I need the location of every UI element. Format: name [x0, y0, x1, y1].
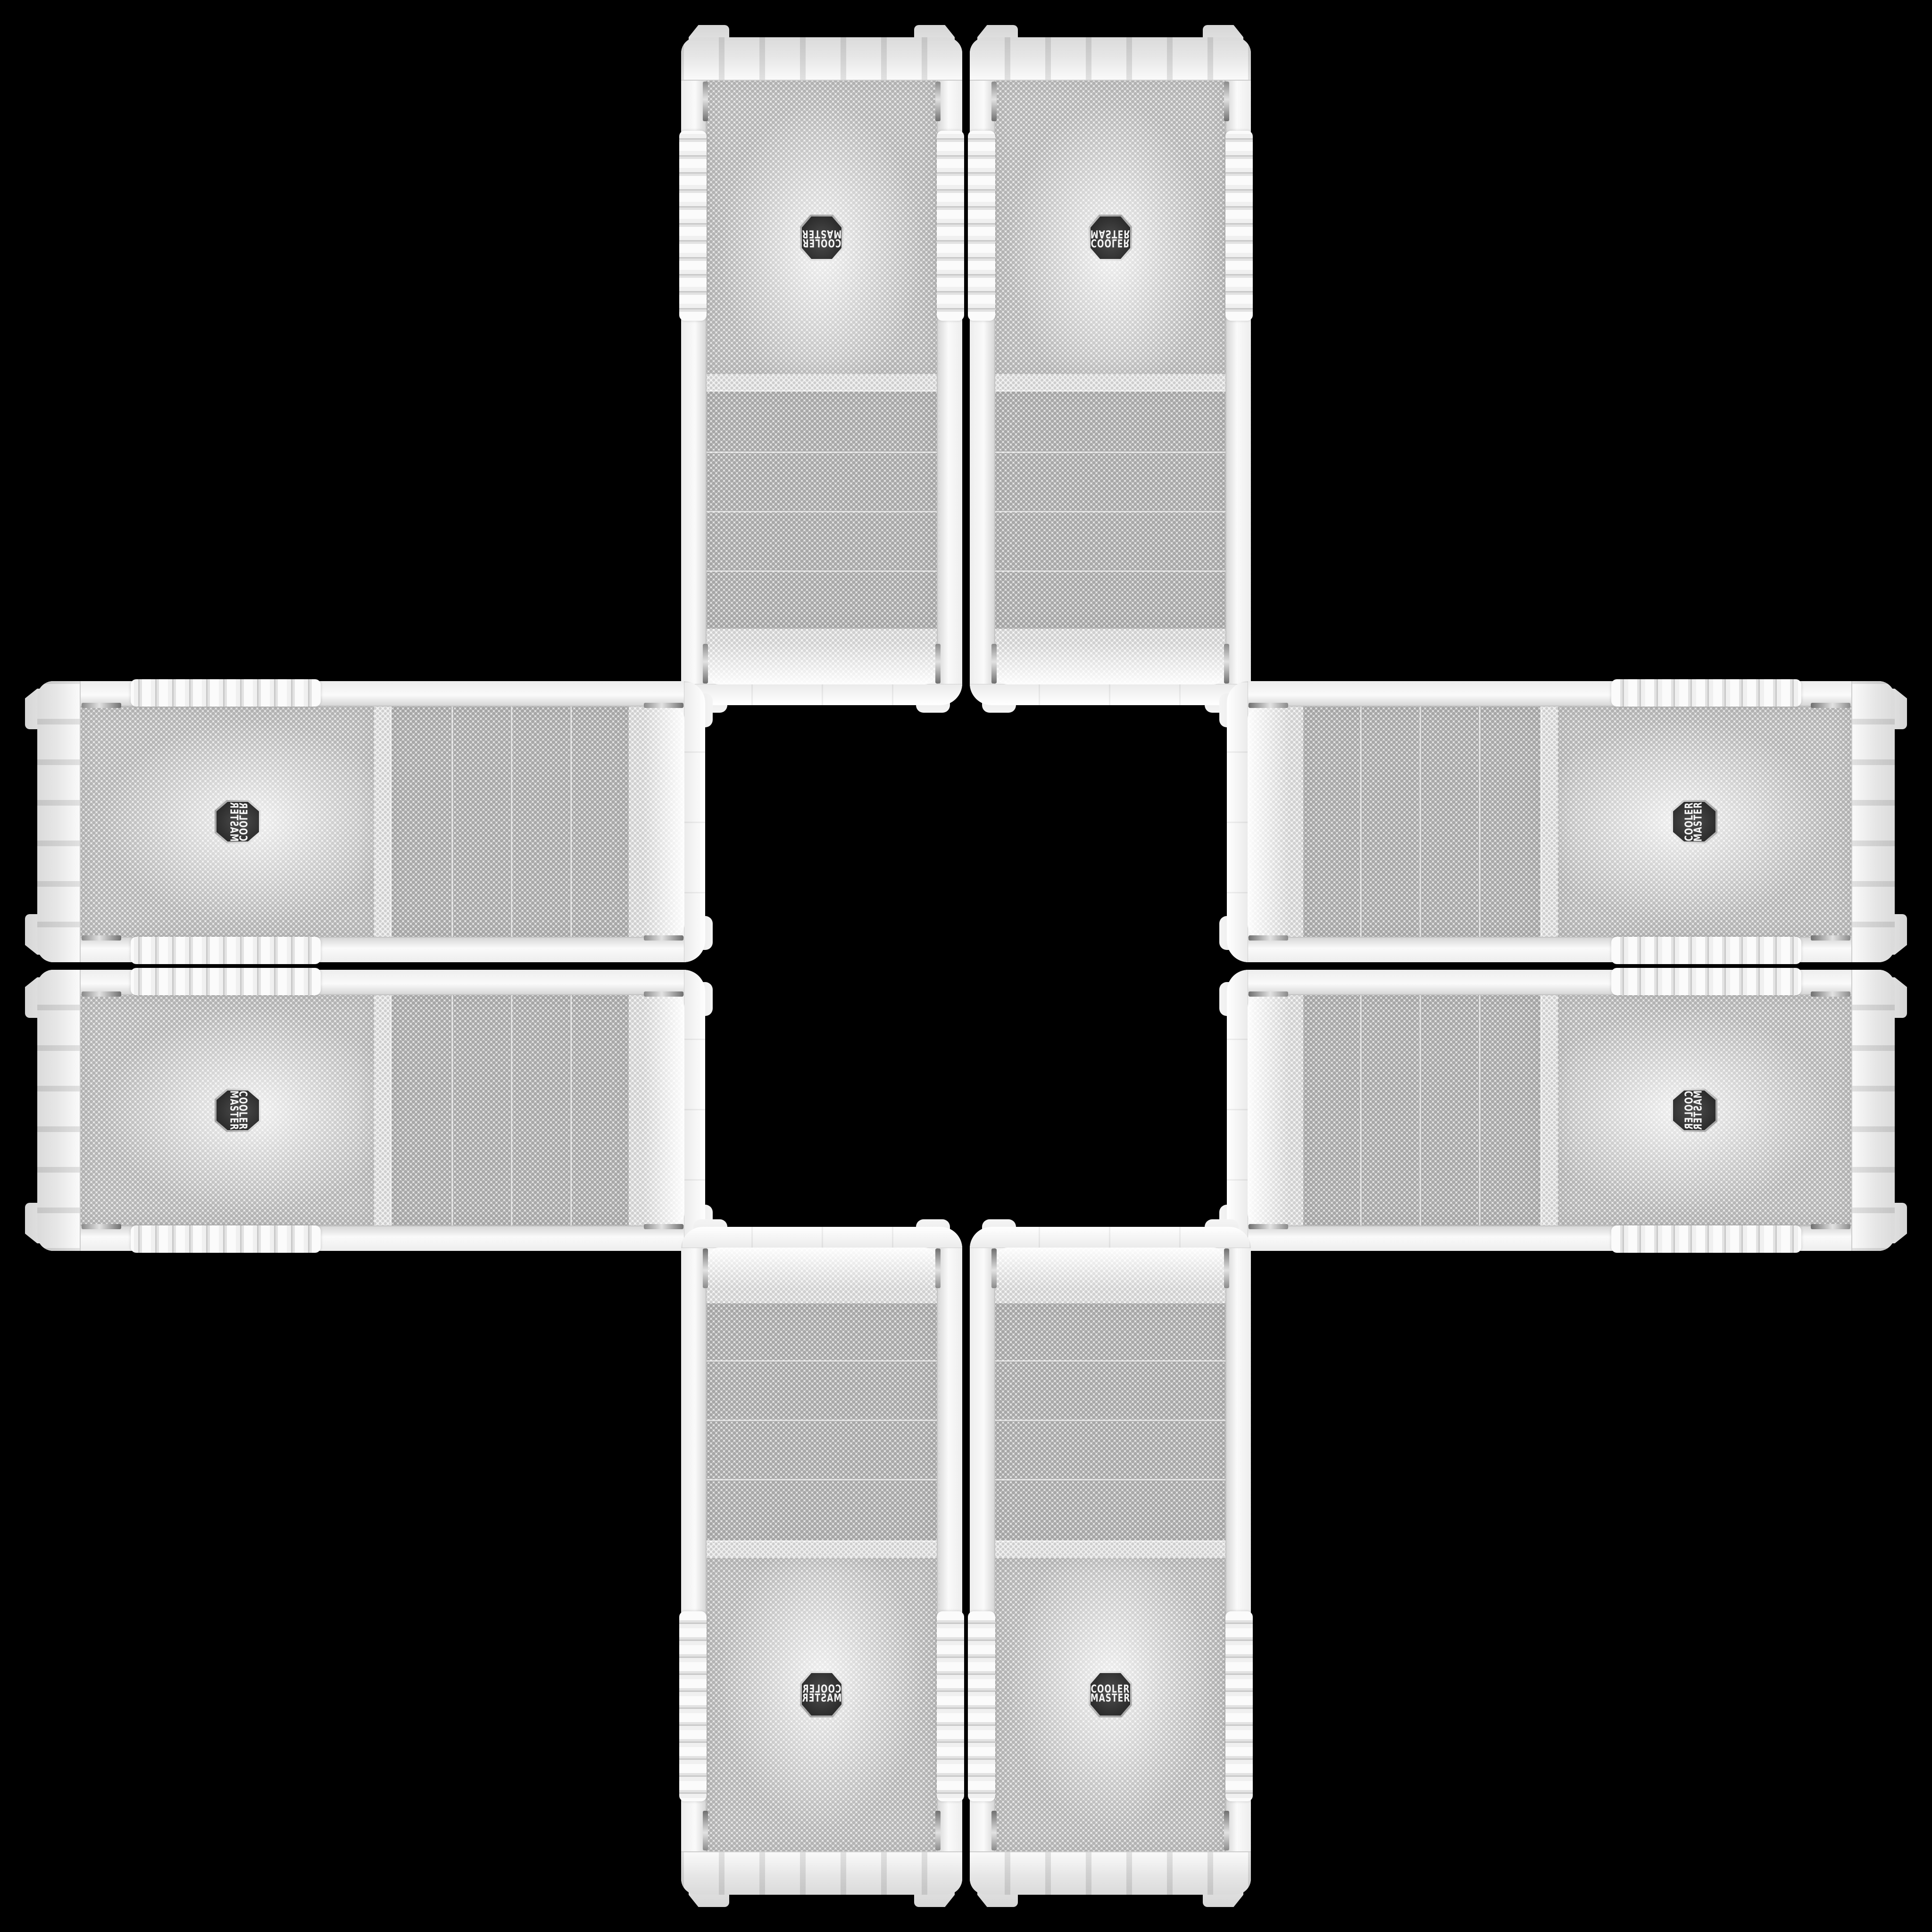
front-bezel: COOLER MASTER — [681, 37, 962, 705]
badge-text-line2: MASTER — [1091, 1693, 1131, 1705]
top-mesh-arch — [995, 1248, 1225, 1303]
chrome-trim — [1811, 935, 1850, 941]
case-front-right-top: COOLER MASTER — [1227, 681, 1895, 962]
chrome-trim — [644, 703, 683, 708]
bay-divider — [707, 569, 937, 572]
bottom-cap — [970, 1851, 1251, 1895]
badge-text-line2: MASTER — [1091, 227, 1131, 240]
chrome-trim — [644, 935, 683, 941]
front-bezel: COOLER MASTER — [681, 1227, 962, 1895]
badge-face: COOLER MASTER — [1673, 1091, 1715, 1130]
bay-divider — [995, 510, 1225, 512]
side-grip-right — [679, 1611, 707, 1801]
case-front-left-bottom: COOLER MASTER — [37, 970, 705, 1251]
chrome-trim — [1249, 935, 1288, 941]
cooler-master-badge: COOLER MASTER — [1671, 1089, 1717, 1132]
front-bezel: COOLER MASTER — [37, 681, 705, 962]
top-cap — [970, 684, 1251, 705]
front-bezel: COOLER MASTER — [1227, 970, 1895, 1251]
bay-divider — [510, 707, 512, 937]
bay-divider — [1479, 707, 1482, 937]
case-front-top-left: COOLER MASTER — [681, 37, 962, 705]
bottom-cap — [37, 970, 81, 1251]
bay-divider — [995, 569, 1225, 572]
bottom-cap — [1851, 681, 1895, 962]
badge-text-line2: MASTER — [802, 1693, 842, 1705]
bay-divider — [510, 995, 512, 1225]
side-grip-left — [131, 968, 321, 995]
badge-face: COOLER MASTER — [217, 1091, 259, 1130]
chrome-trim — [1224, 82, 1229, 121]
front-bezel: COOLER MASTER — [37, 970, 705, 1251]
bay-transition-strip — [1541, 707, 1559, 937]
bay-divider — [569, 707, 572, 937]
chrome-trim — [935, 1249, 941, 1288]
bay-divider — [450, 707, 453, 937]
badge-face: COOLER MASTER — [802, 217, 841, 259]
chrome-trim — [991, 82, 997, 121]
front-bezel: COOLER MASTER — [970, 1227, 1251, 1895]
bay-divider — [450, 995, 453, 1225]
top-cap — [1227, 681, 1248, 962]
badge-text-line2: MASTER — [227, 802, 240, 842]
chrome-trim — [703, 1811, 708, 1850]
cooler-master-badge: COOLER MASTER — [1089, 1671, 1132, 1717]
top-cap — [970, 1227, 1251, 1248]
chrome-trim — [935, 82, 941, 121]
chrome-trim — [703, 82, 708, 121]
badge-face: COOLER MASTER — [802, 1673, 841, 1715]
chrome-trim — [935, 644, 941, 683]
chrome-trim — [1249, 991, 1288, 997]
badge-text-line2: MASTER — [802, 227, 842, 240]
bay-divider — [707, 1360, 937, 1363]
chrome-trim — [1224, 644, 1229, 683]
chrome-trim — [991, 1249, 997, 1288]
side-grip-left — [937, 1611, 964, 1801]
bay-divider — [995, 1360, 1225, 1363]
top-mesh-arch — [1248, 707, 1303, 937]
side-grip-left — [1611, 937, 1801, 964]
chrome-trim — [991, 644, 997, 683]
side-grip-right — [131, 1225, 321, 1253]
top-cap — [681, 1227, 962, 1248]
side-grip-right — [1225, 1611, 1253, 1801]
top-cap — [1227, 970, 1248, 1251]
top-cap — [681, 684, 962, 705]
bay-transition-strip — [707, 373, 937, 391]
chrome-trim — [1224, 1249, 1229, 1288]
bay-divider — [707, 450, 937, 453]
bottom-cap — [681, 37, 962, 81]
bay-divider — [1420, 707, 1422, 937]
side-grip-right — [1225, 131, 1253, 321]
side-grip-right — [131, 679, 321, 707]
case-front-right-bottom: COOLER MASTER — [1227, 970, 1895, 1251]
badge-text-line2: MASTER — [1693, 802, 1705, 842]
bay-transition-strip — [1541, 995, 1559, 1225]
side-grip-left — [131, 937, 321, 964]
bay-transition-strip — [995, 373, 1225, 391]
chrome-trim — [703, 644, 708, 683]
case-front-bottom-right: COOLER MASTER — [970, 1227, 1251, 1895]
chrome-trim — [644, 1224, 683, 1229]
product-collage: COOLER MASTER — [0, 0, 1932, 1932]
top-mesh-arch — [629, 995, 684, 1225]
cooler-master-badge: COOLER MASTER — [800, 1671, 843, 1717]
cooler-master-badge: COOLER MASTER — [215, 800, 261, 843]
top-mesh-arch — [707, 1248, 937, 1303]
bay-divider — [1420, 995, 1422, 1225]
side-grip-right — [1611, 679, 1801, 707]
chrome-trim — [1811, 991, 1850, 997]
bay-divider — [1360, 995, 1363, 1225]
chrome-trim — [1249, 1224, 1288, 1229]
bottom-cap — [970, 37, 1251, 81]
cooler-master-badge: COOLER MASTER — [800, 215, 843, 261]
bay-divider — [707, 510, 937, 512]
bay-divider — [1479, 995, 1482, 1225]
bay-transition-strip — [707, 1541, 937, 1559]
bay-divider — [995, 1479, 1225, 1482]
chrome-trim — [82, 1224, 121, 1229]
bay-divider — [995, 1420, 1225, 1422]
chrome-trim — [1224, 1811, 1229, 1850]
badge-text-line2: MASTER — [1693, 1091, 1705, 1131]
cooler-master-badge: COOLER MASTER — [1089, 215, 1132, 261]
side-grip-right — [1611, 1225, 1801, 1253]
case-front-left-top: COOLER MASTER — [37, 681, 705, 962]
bay-divider — [707, 1420, 937, 1422]
chrome-trim — [82, 703, 121, 708]
chrome-trim — [644, 991, 683, 997]
top-mesh-arch — [707, 629, 937, 684]
case-front-bottom-left: COOLER MASTER — [681, 1227, 962, 1895]
cooler-master-badge: COOLER MASTER — [215, 1089, 261, 1132]
bay-transition-strip — [995, 1541, 1225, 1559]
badge-face: COOLER MASTER — [1091, 217, 1130, 259]
bay-transition-strip — [373, 995, 391, 1225]
top-mesh-arch — [629, 707, 684, 937]
cooler-master-badge: COOLER MASTER — [1671, 800, 1717, 843]
bay-divider — [1360, 707, 1363, 937]
side-grip-left — [1611, 968, 1801, 995]
bottom-cap — [1851, 970, 1895, 1251]
badge-face: COOLER MASTER — [217, 802, 259, 841]
bottom-cap — [37, 681, 81, 962]
chrome-trim — [703, 1249, 708, 1288]
top-mesh-arch — [995, 629, 1225, 684]
chrome-trim — [1811, 1224, 1850, 1229]
top-cap — [684, 970, 705, 1251]
case-front-top-right: COOLER MASTER — [970, 37, 1251, 705]
front-bezel: COOLER MASTER — [1227, 681, 1895, 962]
top-cap — [684, 681, 705, 962]
badge-face: COOLER MASTER — [1673, 802, 1715, 841]
bay-transition-strip — [373, 707, 391, 937]
badge-face: COOLER MASTER — [1091, 1673, 1130, 1715]
side-grip-right — [679, 131, 707, 321]
chrome-trim — [991, 1811, 997, 1850]
bottom-cap — [681, 1851, 962, 1895]
chrome-trim — [82, 991, 121, 997]
bay-divider — [569, 995, 572, 1225]
side-grip-left — [937, 131, 964, 321]
bay-divider — [995, 450, 1225, 453]
chrome-trim — [1249, 703, 1288, 708]
chrome-trim — [82, 935, 121, 941]
top-mesh-arch — [1248, 995, 1303, 1225]
chrome-trim — [1811, 703, 1850, 708]
side-grip-left — [968, 131, 995, 321]
front-bezel: COOLER MASTER — [970, 37, 1251, 705]
chrome-trim — [935, 1811, 941, 1850]
side-grip-left — [968, 1611, 995, 1801]
bay-divider — [707, 1479, 937, 1482]
badge-text-line2: MASTER — [227, 1091, 240, 1131]
